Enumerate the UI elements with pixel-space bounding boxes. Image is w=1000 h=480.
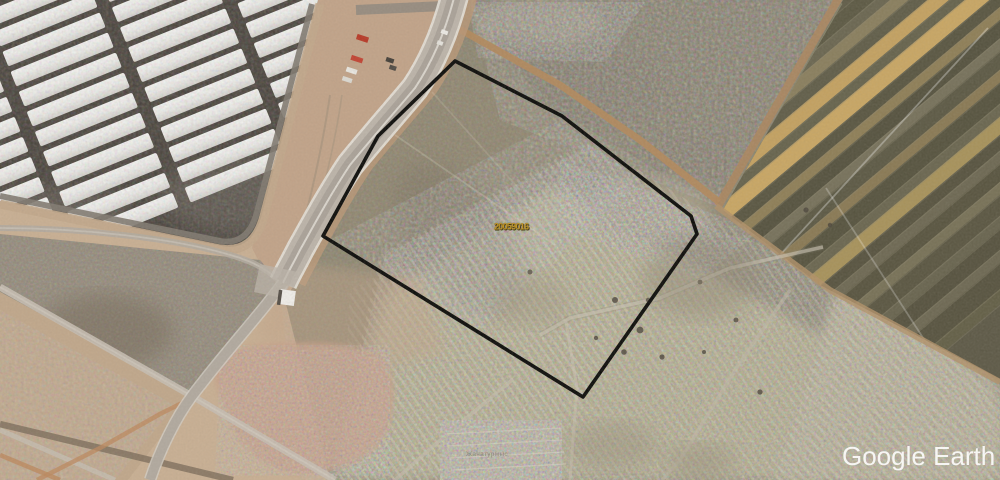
svg-text:Google Earth: Google Earth <box>842 441 995 471</box>
